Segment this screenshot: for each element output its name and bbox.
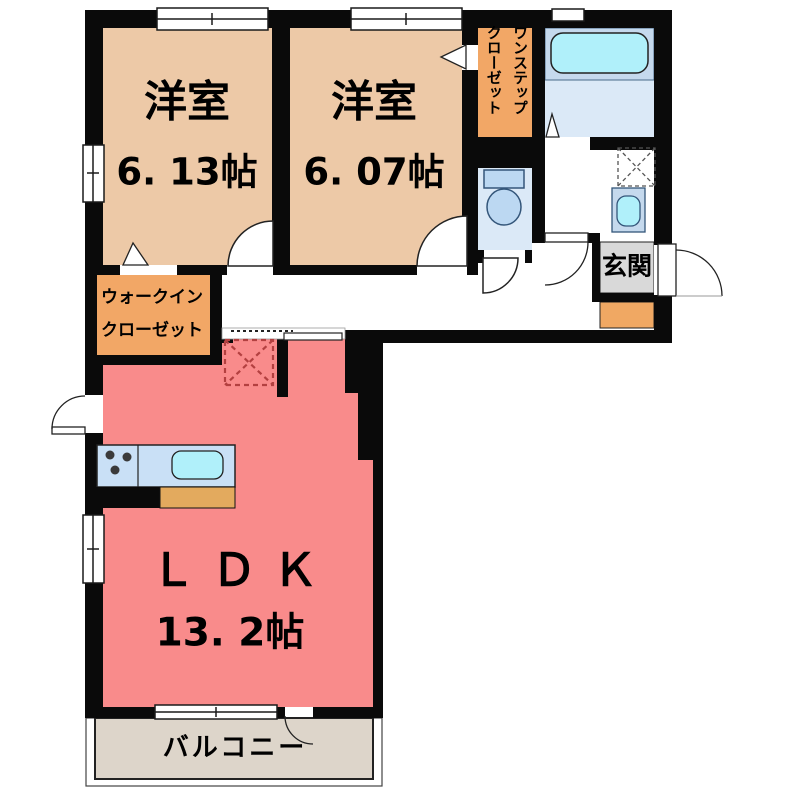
window-icon: [83, 145, 104, 202]
service-door-swing-icon: [52, 396, 85, 434]
bedroom1-name: 洋室: [144, 82, 230, 125]
bedroom1-size: 6. 13帖: [116, 154, 257, 191]
kitchen-base: [90, 487, 160, 508]
wall: [85, 583, 103, 718]
wall: [592, 243, 600, 302]
shoe-cabinet: [600, 302, 654, 328]
floor-plan: 洋室 6. 13帖 洋室 6. 07帖 ワンステップ クローゼット ウォークイン…: [0, 0, 800, 800]
bathroom-door-opening: [545, 137, 590, 150]
stove-burner-icon: [123, 453, 132, 462]
ldk-name: ＬＤＫ: [134, 548, 333, 593]
wall: [290, 265, 417, 275]
ldk-size: 13. 2帖: [156, 614, 305, 653]
stove-burner-icon: [106, 451, 115, 460]
wall: [273, 265, 290, 275]
wall: [85, 707, 155, 718]
wall: [373, 460, 383, 718]
window-icon: [157, 8, 268, 30]
wall: [345, 333, 383, 393]
kitchen-sink-icon: [172, 451, 223, 479]
bedroom2-name: 洋室: [331, 82, 417, 125]
window-icon: [83, 515, 104, 583]
bathtub-icon: [551, 33, 648, 73]
wall: [313, 707, 383, 718]
bedroom2-size: 6. 07帖: [303, 154, 444, 191]
wall: [467, 265, 478, 275]
entrance-label: 玄関: [602, 254, 652, 279]
kitchen-unit: [90, 445, 235, 508]
wall: [532, 10, 545, 243]
bathroom-window-icon: [552, 9, 584, 21]
window-icon: [351, 8, 462, 30]
wall: [462, 10, 478, 45]
wall: [462, 137, 532, 168]
balcony-sliding-window-icon: [155, 705, 277, 719]
washroom-door-swing-icon: [545, 233, 588, 285]
walk-in-closet-label-line1: ウォークイン: [101, 290, 203, 307]
service-door-opening: [85, 395, 103, 433]
wall: [85, 10, 103, 145]
kitchen-counter-top: [160, 487, 235, 508]
stove-burner-icon: [111, 466, 120, 475]
one-step-closet-label-left: クローゼット: [481, 25, 507, 137]
wall: [600, 293, 654, 302]
wall: [272, 10, 290, 275]
ldk-sliding-door-icon: [222, 328, 345, 340]
washing-machine-icon: [618, 148, 655, 186]
walk-in-closet-opening: [120, 265, 177, 275]
wall: [277, 338, 288, 397]
wall: [277, 707, 285, 718]
toilet-door-swing-icon: [483, 258, 518, 293]
wall: [654, 10, 672, 245]
wall: [588, 233, 600, 243]
wall: [358, 392, 383, 460]
one-step-closet-label-right: ワンステップ: [507, 25, 533, 137]
walk-in-closet-label-line2: クローゼット: [101, 323, 203, 340]
wall: [345, 330, 672, 343]
toilet-fixture-icon: [484, 170, 524, 225]
balcony-label: バルコニー: [163, 735, 307, 761]
one-step-closet-label: ワンステップ クローゼット: [479, 25, 533, 137]
wall: [525, 250, 532, 263]
vanity-sink-icon: [612, 188, 645, 232]
front-door-swing-icon: [658, 244, 722, 296]
